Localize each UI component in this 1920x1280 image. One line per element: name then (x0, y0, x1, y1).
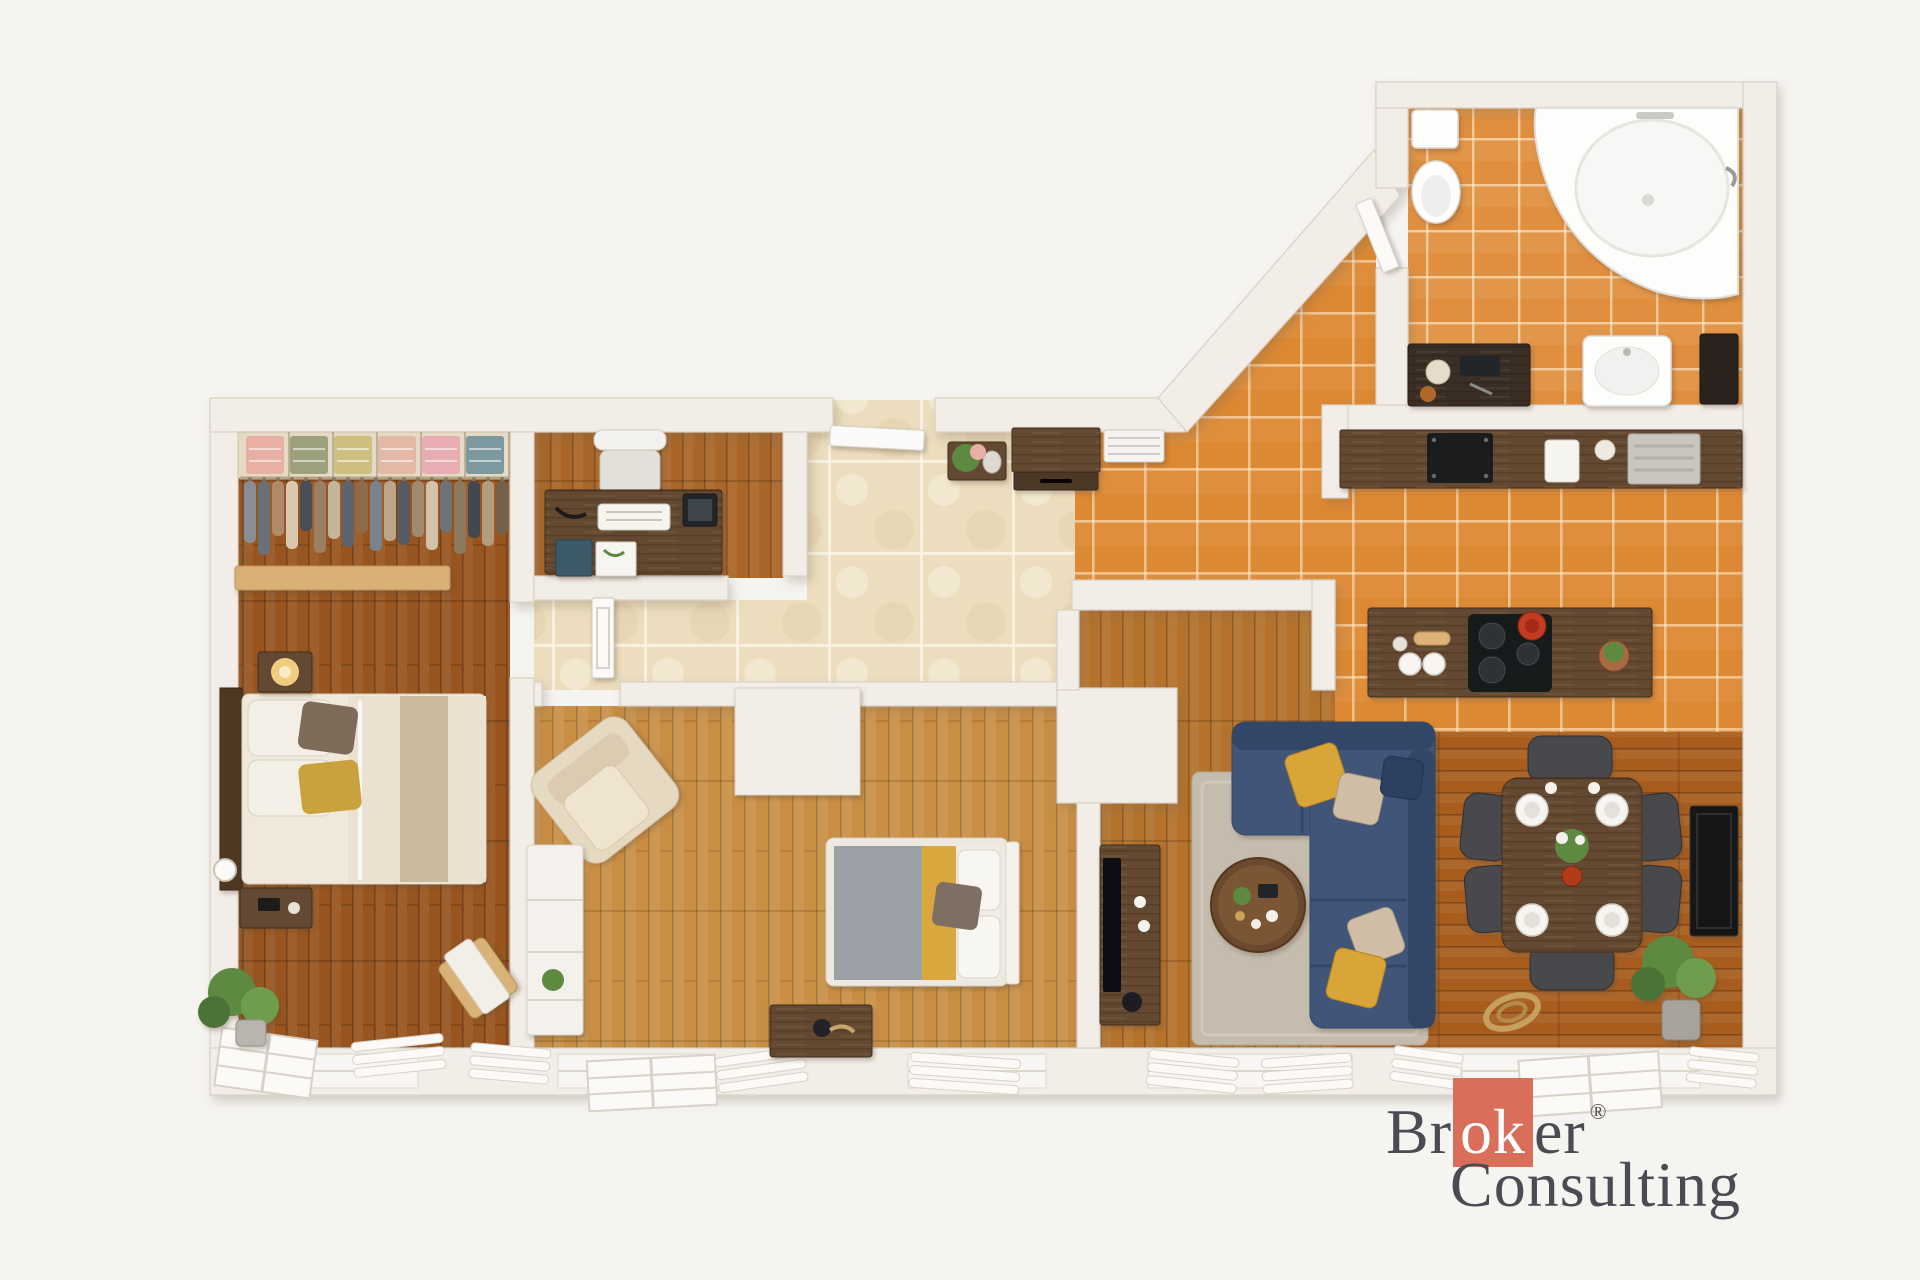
hanger-hook (248, 477, 252, 481)
tv-stand (1100, 845, 1160, 1025)
shelf-divider (464, 432, 466, 478)
hanging-garment (258, 481, 270, 555)
towel-roll (1426, 360, 1450, 384)
hanging-garment (356, 481, 368, 533)
wall-top-middle (935, 398, 1185, 432)
wall-bathroom-top (1376, 82, 1777, 108)
floor-plan-image: Broker® Consulting (0, 0, 1920, 1280)
candle (1138, 920, 1150, 932)
island-plant (1604, 642, 1624, 662)
hanger-hook (458, 477, 462, 481)
vanity-table (1408, 344, 1530, 406)
tray (1460, 356, 1500, 376)
notepad (596, 542, 636, 576)
wall-bedroom2-living (1077, 803, 1100, 1048)
bowl (1393, 637, 1407, 651)
sideboard (1012, 428, 1100, 490)
accent-pillow (931, 881, 983, 931)
brand-logo-line2: Consulting (1450, 1153, 1746, 1217)
fold-seam (249, 448, 281, 450)
folded-clothes-stack (422, 436, 460, 474)
hanger-hook (360, 477, 364, 481)
fold-seam (425, 448, 457, 450)
hanging-garment (496, 481, 508, 534)
fold-seam (425, 460, 457, 462)
chair (1528, 736, 1612, 782)
hanging-garment (440, 481, 452, 532)
lamp (279, 666, 291, 678)
hanging-garment (272, 481, 284, 536)
shelf-divider (332, 432, 334, 478)
fold-seam (293, 460, 325, 462)
tub-drain (1642, 194, 1654, 206)
fold-seam (249, 460, 281, 462)
alarm-clock (214, 859, 236, 881)
fold-seam (381, 448, 413, 450)
plate (1399, 653, 1421, 675)
folded-clothes-stack (290, 436, 328, 474)
notebook (556, 540, 592, 576)
hanging-garment (468, 481, 480, 538)
phone (258, 898, 280, 911)
hanging-garment (300, 481, 312, 531)
interior-door-leaf (592, 598, 614, 678)
hanger-hook (500, 477, 504, 481)
wall-bathroom-left-lower (1376, 268, 1408, 412)
fold-seam (337, 448, 369, 450)
nightstand (240, 888, 312, 928)
plant-pot (1662, 1000, 1700, 1040)
hanger-hook (402, 477, 406, 481)
wall-radiator-panel (1690, 806, 1738, 936)
fold-seam (469, 460, 501, 462)
dining-table (1502, 778, 1642, 952)
hanging-garment (328, 481, 340, 539)
fold-seam (293, 448, 325, 450)
wall-living-top (1072, 580, 1335, 610)
hanger-hook (388, 477, 392, 481)
hanging-garment (454, 481, 466, 554)
hanger-hook (472, 477, 476, 481)
hanging-garment (412, 481, 424, 537)
tub-basin (1576, 120, 1728, 256)
built-in-sink (1427, 433, 1493, 483)
fold-seam (337, 460, 369, 462)
tablet-screen (688, 499, 712, 521)
shoe-rack (1104, 430, 1164, 462)
tray (1258, 884, 1278, 898)
white-wardrobe (527, 845, 583, 1035)
hanger-hook (276, 477, 280, 481)
table-plant (1233, 887, 1251, 905)
burner (1479, 657, 1505, 683)
hanger-hook (290, 477, 294, 481)
kitchen-island (1368, 608, 1652, 697)
tub-faucet (1636, 112, 1674, 119)
double-bed (220, 688, 486, 890)
hanger-hook (332, 477, 336, 481)
wall-living-kitchen (1312, 580, 1335, 690)
shelf-divider (288, 432, 290, 478)
blanket-stripe (400, 696, 448, 882)
hallway-strip-floor (534, 600, 807, 690)
wall-bedroom-right-upper (510, 432, 534, 602)
hanger-hook (262, 477, 266, 481)
registered-mark: ® (1590, 1099, 1608, 1124)
hanging-garment (398, 481, 410, 545)
pillow-champagne (1332, 772, 1387, 827)
entry-door-leaf (830, 426, 925, 451)
wall-top-left (210, 398, 833, 432)
pillow-gold (298, 759, 363, 815)
hanging-garment (482, 481, 494, 546)
wall-bedroom2-top-a (534, 682, 542, 706)
hanger-hook (486, 477, 490, 481)
hanging-garment (426, 481, 438, 550)
candle (1134, 896, 1146, 908)
bowl (1122, 992, 1142, 1012)
wall-block-living (1057, 688, 1177, 803)
plant-pot (236, 1020, 266, 1046)
folded-clothes-stack (334, 436, 372, 474)
hanging-garment (314, 481, 326, 553)
wall-office-right (783, 432, 807, 576)
hanger-hook (444, 477, 448, 481)
fold-seam (381, 460, 413, 462)
pillow-navy (1379, 755, 1424, 800)
shelf-divider (508, 432, 510, 478)
towel (1545, 440, 1579, 482)
hanging-garment (244, 481, 256, 543)
closet-bench-beam (235, 566, 450, 590)
hanging-garment (370, 481, 382, 551)
cistern (1412, 110, 1458, 148)
keyboard (598, 504, 670, 530)
red-cup (1562, 866, 1582, 886)
headboard (1006, 842, 1019, 984)
mug (1595, 440, 1615, 460)
storage-chest (770, 1005, 872, 1057)
open-window-frame (587, 1055, 717, 1112)
fold-seam (469, 448, 501, 450)
hanging-garment (286, 481, 298, 549)
hanger-hook (416, 477, 420, 481)
vase (983, 451, 1001, 473)
hanger-hook (430, 477, 434, 481)
office-chair (594, 430, 666, 494)
hanging-garment (342, 481, 354, 547)
tv (1103, 858, 1121, 992)
mirror (1700, 334, 1738, 404)
basin-faucet (1623, 348, 1631, 356)
wall-hall-living (1057, 610, 1079, 690)
brand-logo: Broker® Consulting (1386, 1078, 1746, 1217)
hanger-hook (318, 477, 322, 481)
shelf-divider (420, 432, 422, 478)
cup (1420, 386, 1436, 402)
small-plant (542, 969, 564, 991)
shelf-divider (376, 432, 378, 478)
wall-kitchen-bathroom (1322, 405, 1743, 432)
folded-clothes-stack (246, 436, 284, 474)
round-coffee-table (1211, 858, 1305, 952)
hanger-hook (374, 477, 378, 481)
folded-clothes-stack (378, 436, 416, 474)
hanger-hook (304, 477, 308, 481)
folded-clothes-stack (466, 436, 504, 474)
gray-blanket (834, 846, 922, 980)
wall-right (1743, 82, 1777, 1095)
hanger-hook (346, 477, 350, 481)
plant-side-table (948, 442, 1006, 480)
double-bed (826, 838, 1019, 986)
burner (1479, 623, 1505, 649)
kitchen-counter (1340, 430, 1742, 488)
hanging-garment (384, 481, 396, 541)
plate (1423, 653, 1445, 675)
burner (1517, 643, 1539, 665)
built-in-wardrobe (735, 688, 860, 795)
nightstand-with-lamp (258, 652, 312, 692)
pillow-brown (297, 700, 359, 755)
cutting-board (1414, 632, 1450, 645)
wall-office-bottom (534, 576, 728, 600)
brand-text: Br (1386, 1096, 1452, 1167)
